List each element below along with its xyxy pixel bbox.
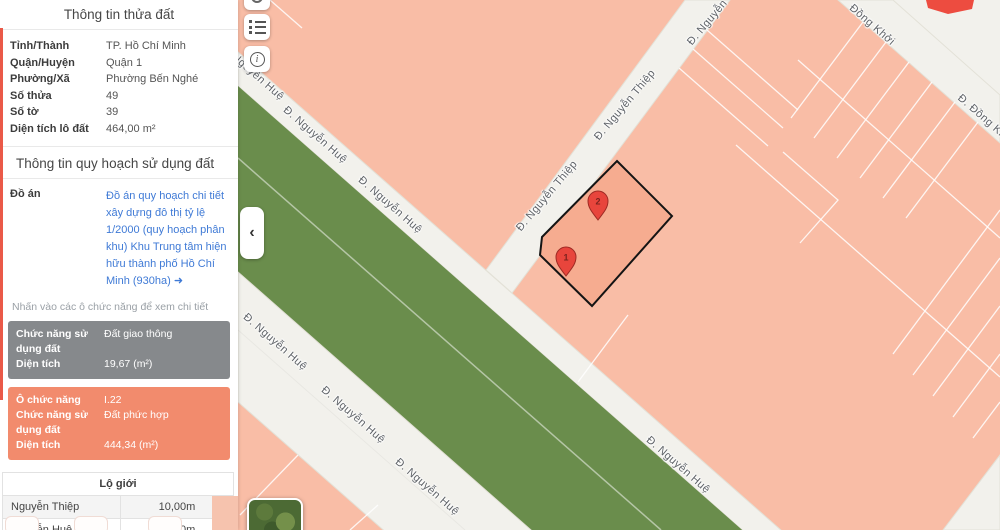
- legend-button[interactable]: [244, 14, 270, 40]
- info-sidebar: Thông tin thửa đất Tỉnh/ThànhTP. Hồ Chí …: [0, 0, 238, 530]
- svg-text:1: 1: [563, 253, 568, 263]
- basemap-switch-thumbnail[interactable]: [247, 498, 303, 530]
- traffic-box-row: Diện tích19,67 (m²): [8, 357, 230, 372]
- sidebar-collapse-button[interactable]: ‹: [240, 207, 264, 259]
- bottom-button-3[interactable]: [148, 516, 182, 530]
- parcel-info-row: Tỉnh/ThànhTP. Hồ Chí Minh: [10, 38, 230, 55]
- parcel-info-row: Diện tích lô đất464,00 m²: [10, 121, 230, 138]
- circle-tool-icon: [251, 0, 263, 3]
- map-canvas[interactable]: 12 Đ. Nguyễn ThiệpĐ. Nguyễn ThiệpĐ. Nguy…: [238, 0, 1000, 530]
- svg-text:2: 2: [595, 197, 600, 207]
- map-layers: 12: [238, 0, 1000, 530]
- plan-project-row: Đồ án Đồ án quy hoạch chi tiết xây dựng …: [0, 179, 238, 290]
- plan-project-label: Đồ án: [10, 188, 106, 290]
- app-window: 12 Đ. Nguyễn ThiệpĐ. Nguyễn ThiệpĐ. Nguy…: [0, 0, 1000, 530]
- partial-top-button[interactable]: [244, 0, 270, 10]
- bottom-buttons-row: [0, 516, 212, 530]
- legend-list-icon: [249, 20, 266, 23]
- info-icon: i: [250, 52, 265, 67]
- chevron-left-icon: ‹: [249, 224, 254, 242]
- mixed-use-box-row: Diện tích444,34 (m²): [8, 438, 230, 453]
- plan-project-link[interactable]: Đồ án quy hoạch chi tiết xây dựng đô thị…: [106, 188, 232, 290]
- road-boundary-table-title: Lộ giới: [3, 473, 233, 496]
- accent-strip: [0, 28, 3, 400]
- bottom-button-1[interactable]: [5, 516, 39, 530]
- info-button[interactable]: i: [244, 46, 270, 72]
- parcel-info-row: Phường/XãPhường Bến Nghé: [10, 71, 230, 88]
- function-box-mixed-use[interactable]: Ô chức năngI.22Chức năng sử dụng đấtĐất …: [8, 387, 230, 460]
- planning-info-title: Thông tin quy hoạch sử dụng đất: [0, 146, 238, 179]
- map-gap-patch: [212, 496, 238, 530]
- click-hint-text: Nhấn vào các ô chức năng để xem chi tiết: [0, 290, 238, 313]
- parcel-info-row: Quận/HuyệnQuận 1: [10, 55, 230, 72]
- function-box-traffic[interactable]: Chức năng sử dụng đấtĐất giao thôngDiện …: [8, 321, 230, 379]
- bottom-button-2[interactable]: [74, 516, 108, 530]
- mixed-use-box-row: Ô chức năngI.22: [8, 393, 230, 408]
- parcel-info-row: Số thửa49: [10, 88, 230, 105]
- parcel-info-rows: Tỉnh/ThànhTP. Hồ Chí MinhQuận/HuyệnQuận …: [0, 30, 238, 137]
- parcel-info-row: Số tờ39: [10, 104, 230, 121]
- parcel-info-title: Thông tin thửa đất: [0, 0, 238, 30]
- traffic-box-row: Chức năng sử dụng đấtĐất giao thông: [8, 327, 230, 357]
- mixed-use-box-row: Chức năng sử dụng đấtĐất phức hợp: [8, 408, 230, 438]
